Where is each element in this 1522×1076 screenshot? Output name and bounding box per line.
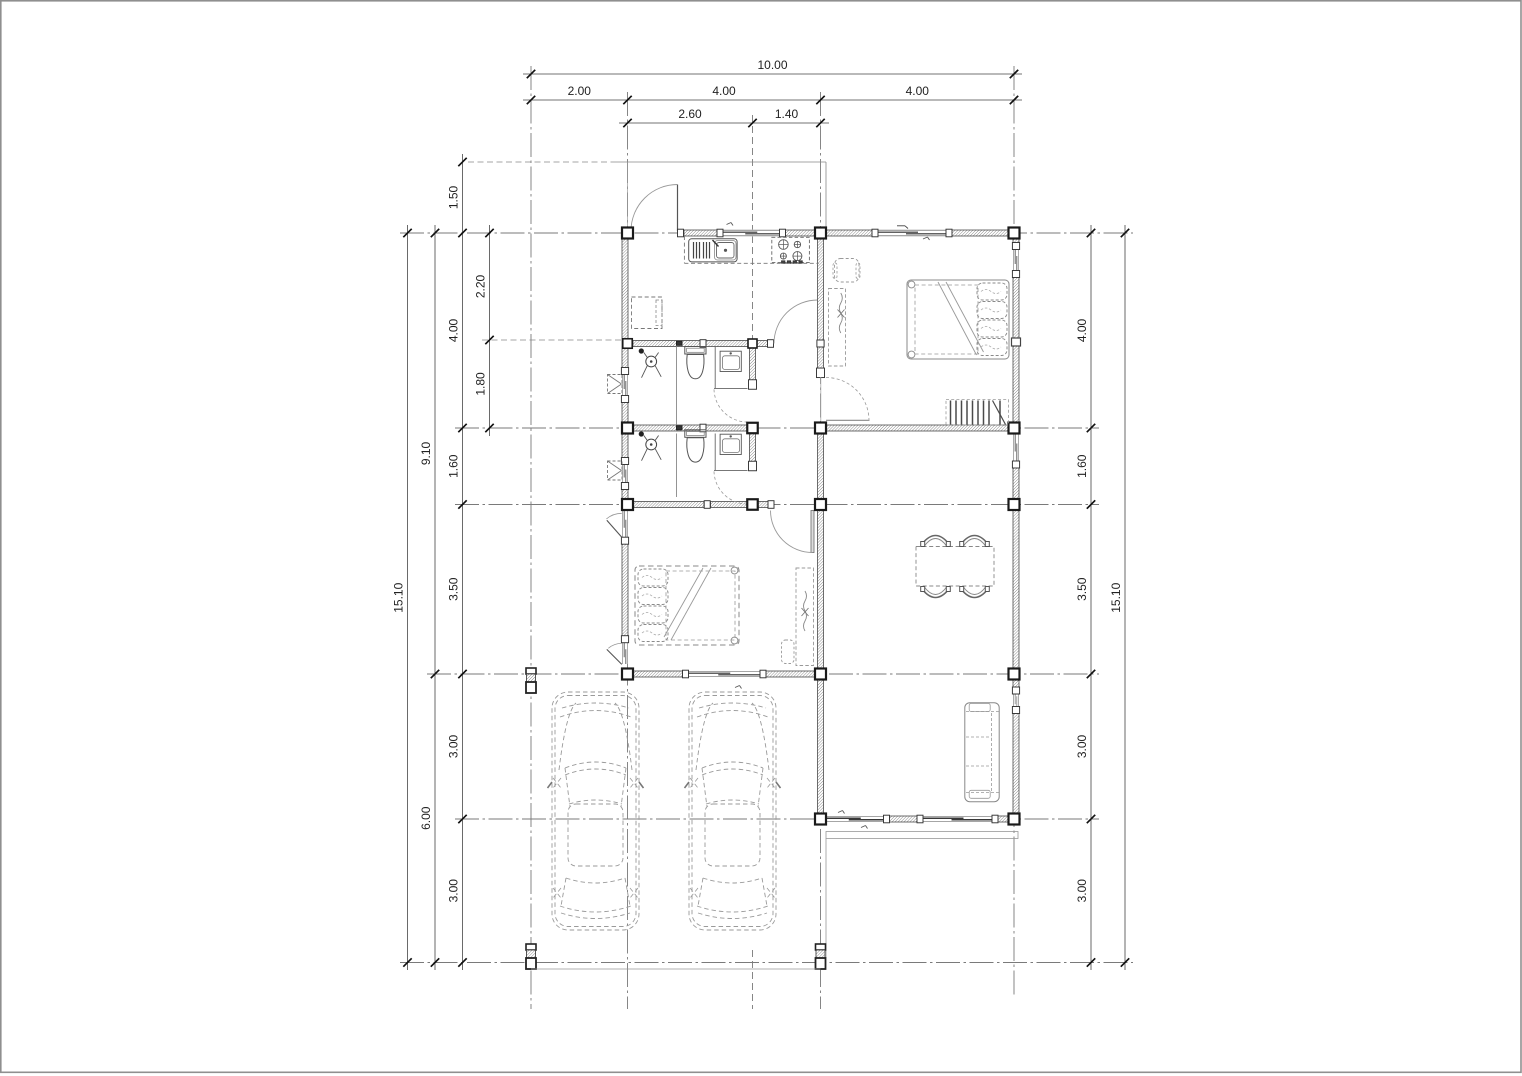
svg-text:2.00: 2.00	[568, 84, 592, 98]
svg-text:4.00: 4.00	[906, 84, 930, 98]
svg-text:3.50: 3.50	[1075, 577, 1089, 601]
svg-text:2.60: 2.60	[678, 107, 702, 121]
svg-text:2.20: 2.20	[474, 274, 488, 298]
svg-text:3.50: 3.50	[447, 577, 461, 601]
svg-text:1.60: 1.60	[447, 454, 461, 478]
svg-text:1.50: 1.50	[447, 185, 461, 209]
svg-text:4.00: 4.00	[712, 84, 736, 98]
svg-text:3.00: 3.00	[1075, 879, 1089, 903]
svg-text:1.60: 1.60	[1075, 454, 1089, 478]
svg-text:4.00: 4.00	[447, 318, 461, 342]
svg-text:1.80: 1.80	[474, 372, 488, 396]
svg-text:10.00: 10.00	[757, 58, 787, 72]
svg-text:3.00: 3.00	[1075, 734, 1089, 758]
svg-text:3.00: 3.00	[447, 879, 461, 903]
svg-text:6.00: 6.00	[419, 806, 433, 830]
svg-text:1.40: 1.40	[775, 107, 799, 121]
svg-text:15.10: 15.10	[392, 582, 406, 612]
svg-text:4.00: 4.00	[1075, 318, 1089, 342]
svg-text:15.10: 15.10	[1109, 582, 1123, 612]
svg-text:3.00: 3.00	[447, 734, 461, 758]
svg-text:9.10: 9.10	[419, 441, 433, 465]
